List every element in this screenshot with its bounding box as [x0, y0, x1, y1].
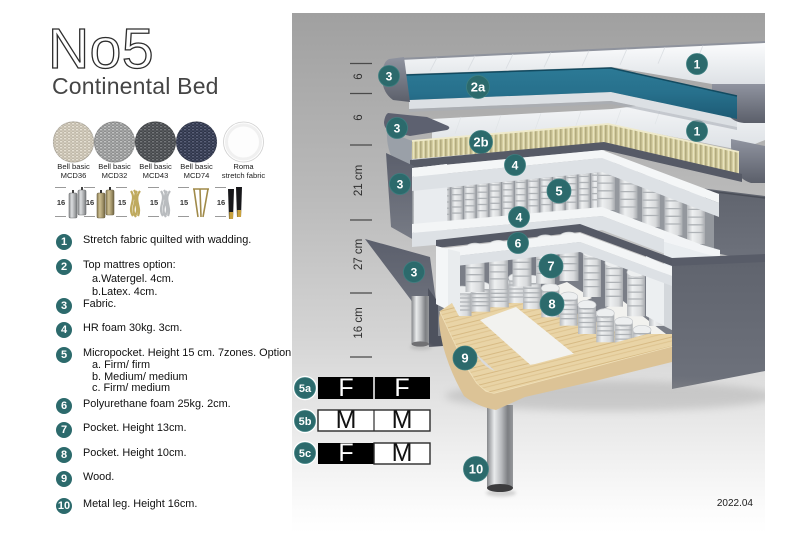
svg-text:F: F	[394, 374, 409, 402]
svg-text:2022.04: 2022.04	[717, 498, 754, 509]
svg-text:2a: 2a	[471, 80, 486, 95]
svg-text:3: 3	[386, 69, 393, 83]
svg-text:16 cm: 16 cm	[353, 307, 365, 338]
svg-text:9: 9	[461, 351, 468, 366]
svg-text:8: 8	[548, 297, 555, 312]
svg-text:6: 6	[353, 73, 365, 79]
svg-text:7: 7	[547, 259, 554, 274]
svg-text:M: M	[392, 439, 413, 467]
svg-text:M: M	[392, 406, 413, 434]
svg-text:1: 1	[694, 57, 701, 71]
svg-text:6: 6	[515, 236, 522, 250]
svg-text:5: 5	[555, 184, 562, 199]
svg-text:21 cm: 21 cm	[353, 165, 365, 196]
svg-text:6: 6	[353, 114, 365, 120]
svg-text:5a: 5a	[299, 383, 312, 395]
svg-text:3: 3	[411, 265, 418, 279]
svg-text:5b: 5b	[299, 416, 312, 428]
svg-text:4: 4	[512, 158, 519, 172]
svg-text:1: 1	[694, 124, 701, 138]
svg-text:3: 3	[394, 121, 401, 135]
svg-text:4: 4	[516, 210, 523, 224]
svg-text:M: M	[336, 406, 357, 434]
svg-text:10: 10	[469, 462, 483, 477]
svg-text:F: F	[338, 374, 353, 402]
svg-text:3: 3	[397, 177, 404, 191]
svg-text:F: F	[338, 439, 353, 467]
svg-text:27 cm: 27 cm	[353, 239, 365, 270]
svg-text:2b: 2b	[473, 135, 488, 150]
svg-text:5c: 5c	[299, 448, 311, 460]
